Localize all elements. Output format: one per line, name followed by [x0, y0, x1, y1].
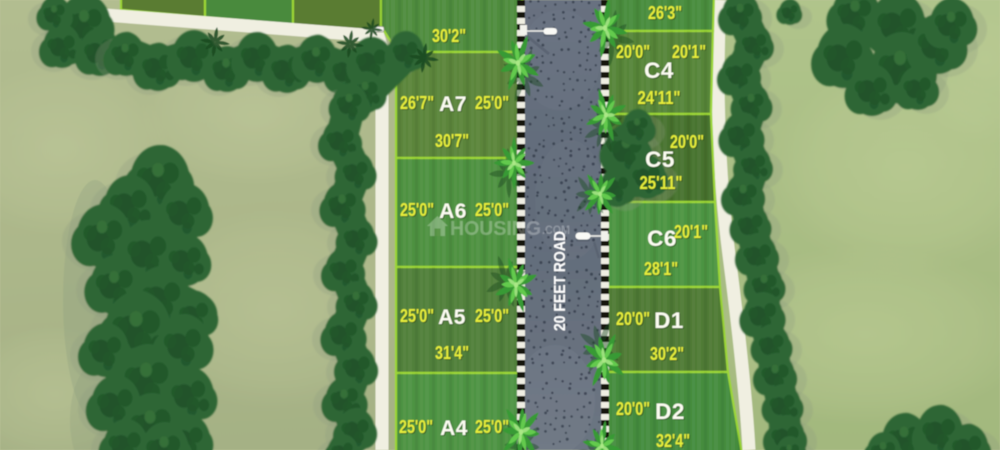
svg-text:20'1": 20'1" — [674, 222, 708, 242]
svg-text:C4: C4 — [644, 58, 674, 83]
svg-text:25'0": 25'0" — [475, 93, 509, 113]
svg-text:25'11": 25'11" — [640, 173, 683, 193]
svg-text:25'0": 25'0" — [399, 417, 433, 437]
svg-text:32'4": 32'4" — [656, 431, 690, 450]
svg-text:25'0": 25'0" — [400, 306, 434, 326]
svg-text:D1: D1 — [654, 308, 684, 333]
svg-text:20'0": 20'0" — [616, 399, 650, 419]
svg-text:A6: A6 — [439, 200, 467, 223]
svg-text:26'7": 26'7" — [400, 93, 434, 113]
svg-text:20'0": 20'0" — [616, 309, 650, 329]
svg-text:24'11": 24'11" — [638, 88, 681, 108]
svg-text:25'0": 25'0" — [475, 306, 509, 326]
svg-text:20'1": 20'1" — [672, 42, 706, 62]
svg-text:30'2": 30'2" — [432, 26, 466, 46]
svg-text:28'1": 28'1" — [644, 259, 678, 279]
svg-text:A7: A7 — [439, 93, 467, 116]
svg-text:25'0": 25'0" — [475, 200, 509, 220]
svg-text:30'7": 30'7" — [435, 131, 469, 151]
svg-text:C6: C6 — [647, 226, 677, 251]
svg-text:A4: A4 — [440, 417, 468, 440]
svg-text:25'0": 25'0" — [400, 200, 434, 220]
svg-text:26'3": 26'3" — [648, 3, 682, 23]
svg-text:C5: C5 — [645, 147, 675, 172]
svg-text:A5: A5 — [438, 306, 466, 329]
svg-text:D2: D2 — [655, 399, 685, 424]
svg-text:20 FEET ROAD: 20 FEET ROAD — [552, 231, 569, 331]
svg-text:25'0": 25'0" — [475, 417, 509, 437]
svg-text:31'4": 31'4" — [435, 343, 469, 363]
svg-text:30'2": 30'2" — [650, 344, 684, 364]
